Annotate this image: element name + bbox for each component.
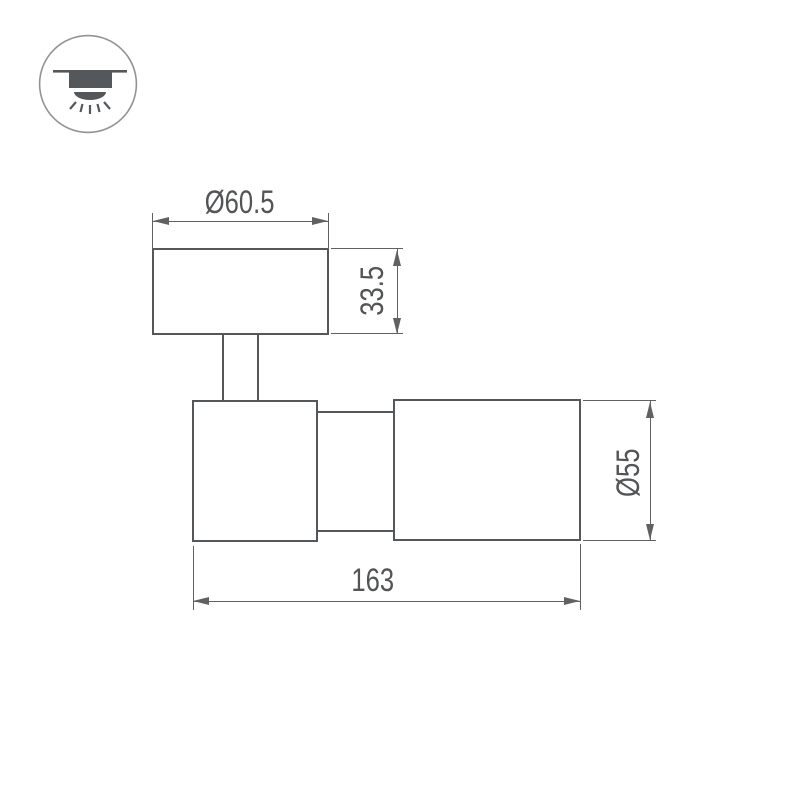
dimension-label-base-height: 33.5 [355, 201, 389, 381]
dimension-text: 33.5 [355, 266, 389, 316]
arrowhead-up-icon [393, 250, 401, 266]
body-front-outline [393, 399, 581, 541]
body-rear-outline [192, 400, 318, 542]
light-ray [104, 102, 110, 109]
surface-mount-light-icon [38, 34, 138, 134]
arrowhead-up-icon [646, 402, 654, 418]
stem-outline [222, 334, 259, 401]
light-rays-icon [70, 102, 110, 114]
dimension-line [193, 601, 580, 602]
dimension-text: Ø55 [611, 449, 645, 497]
light-ray [81, 104, 83, 112]
drawing-canvas: Ø60.5 33.5 Ø55 163 [0, 0, 800, 800]
mount-base-outline [152, 248, 329, 335]
dimension-label-overall-length: 163 [283, 563, 463, 597]
arrowhead-right-icon [564, 597, 580, 605]
dimension-line [153, 221, 329, 222]
arrowhead-left-icon [193, 597, 209, 605]
dimension-label-base-diameter: Ø60.5 [150, 185, 330, 219]
lamp-dome [74, 92, 106, 100]
arrowhead-down-icon [393, 318, 401, 334]
dimension-text: 163 [352, 563, 395, 597]
dimension-line [650, 401, 651, 540]
dimension-text: Ø60.5 [205, 185, 275, 219]
arrowhead-down-icon [646, 524, 654, 540]
light-ray [98, 104, 100, 112]
joint-bottom-line [317, 530, 395, 532]
joint-top-line [317, 411, 395, 413]
lamp-housing-box [69, 71, 112, 89]
extension-line [580, 544, 581, 610]
dimension-label-body-diameter: Ø55 [611, 383, 645, 563]
light-ray [70, 102, 76, 109]
